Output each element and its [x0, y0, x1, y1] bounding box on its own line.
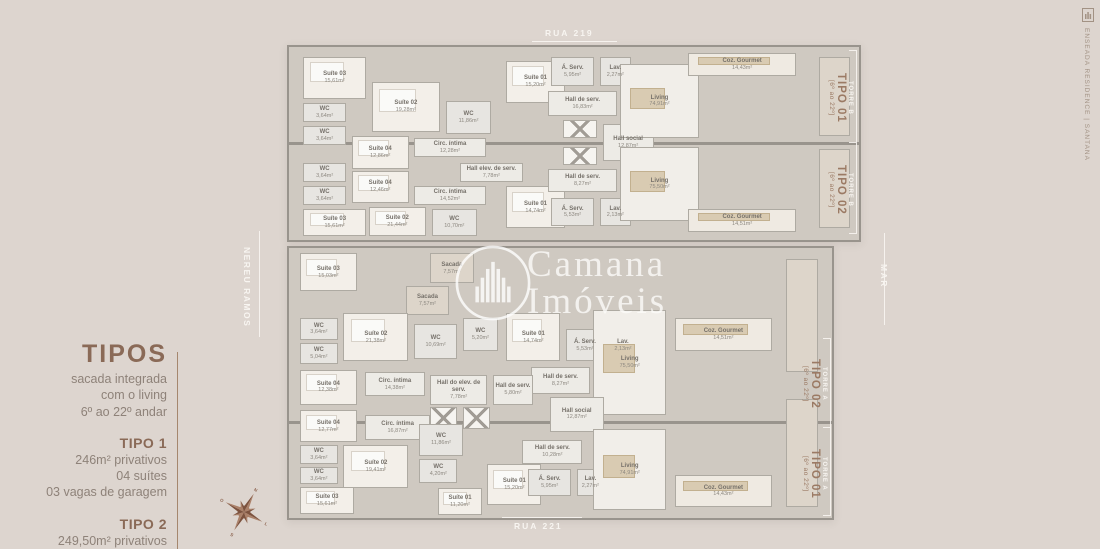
- info-panel-divider: [177, 352, 178, 549]
- room-area: 21,44m²: [387, 222, 407, 228]
- room-circ-intima: Circ. íntima14,52m²: [414, 186, 485, 205]
- room-name: Lav.: [610, 206, 622, 213]
- room-area: 12,46m²: [370, 187, 390, 193]
- room-area: 15,03m²: [318, 273, 338, 279]
- room-name: WC: [431, 335, 441, 342]
- room-sacada: Sacada7,57m²: [406, 286, 449, 316]
- room-area: 4,20m²: [430, 471, 447, 477]
- room-area: 10,69m²: [426, 342, 446, 348]
- room-coz-gourmet: Coz. Gourmet14,51m²: [688, 209, 796, 232]
- room-area: 7,78m²: [450, 394, 467, 400]
- room-area: 11,86m²: [431, 440, 451, 446]
- info-subtitle: sacada integrada com o living 6º ao 22º …: [0, 371, 167, 420]
- tipo-name: TIPO 01: [835, 54, 847, 142]
- floors-range: [6º ao 22º]: [828, 146, 835, 234]
- tower-name: TORRE A: [821, 340, 827, 428]
- room-wc: WC5,04m²: [300, 343, 338, 365]
- corner-brand-label: ENSEADA RESIDENCE | SANTANA: [1083, 28, 1090, 161]
- room-name: Coz. Gourmet: [704, 328, 743, 335]
- room-name: Hall elev. de serv.: [467, 166, 516, 173]
- floors-range: [6º ao 22º]: [828, 54, 835, 142]
- room-area: 2,13m²: [614, 346, 631, 352]
- room-suite-03: Suíte 0315,61m²: [303, 209, 366, 236]
- room-name: WC: [475, 328, 485, 335]
- room-area: 3,64m²: [316, 196, 333, 202]
- room-name: Suíte 02: [394, 100, 417, 107]
- sea-label-mar: MAR: [879, 264, 889, 288]
- room-coz-gourmet: Coz. Gourmet14,51m²: [675, 318, 773, 350]
- room-area: 15,61m²: [325, 78, 345, 84]
- subtitle-line: sacada integrada: [0, 371, 167, 387]
- compass-s: S: [229, 532, 234, 538]
- street-label-nereu-ramos: NEREU RAMOS: [242, 247, 252, 327]
- elevator-core: [563, 147, 597, 164]
- elevator-core: [563, 120, 597, 137]
- room-area: 12,87m²: [567, 414, 587, 420]
- room-suite-02: Suíte 0219,41m²: [343, 445, 408, 488]
- room-area: 14,43m²: [713, 491, 733, 497]
- room-name: WC: [449, 216, 459, 223]
- room-wc: WC3,64m²: [303, 126, 346, 145]
- room-name: Coz. Gourmet: [722, 58, 761, 65]
- room-hall-social: Hall social12,87m²: [550, 397, 604, 432]
- tipo-2-heading: TIPO 2: [0, 516, 167, 532]
- watermark-line-1: Camana: [527, 246, 667, 283]
- room-area: 3,64m²: [316, 113, 333, 119]
- room-area: 12,86m²: [370, 153, 390, 159]
- room-name: Hall de serv.: [496, 383, 531, 390]
- room-name: Suíte 02: [386, 215, 409, 222]
- room-wc: WC3,64m²: [300, 318, 338, 340]
- room-name: Suíte 03: [323, 71, 346, 78]
- room-name: Suíte 03: [316, 494, 339, 501]
- room-name: WC: [320, 129, 330, 136]
- room-name: Coz. Gourmet: [722, 214, 761, 221]
- room-hall-de-serv: Hall de serv.8,27m²: [548, 169, 616, 192]
- room-area: 5,53m²: [564, 212, 581, 218]
- room-wc: WC3,64m²: [303, 103, 346, 122]
- room-suite-03: Suíte 0315,61m²: [303, 57, 366, 99]
- floors-range: [6º ao 22º]: [802, 430, 809, 518]
- room-wc: WC4,20m²: [419, 459, 457, 483]
- room-name: WC: [314, 323, 324, 330]
- room-area: 11,20m²: [450, 502, 470, 508]
- room-name: WC: [314, 469, 324, 476]
- room-name: Suíte 03: [317, 266, 340, 273]
- room-circ-intima: Circ. íntima12,28m²: [414, 138, 485, 157]
- page-title: TIPOS: [0, 342, 167, 367]
- room-name: WC: [320, 106, 330, 113]
- street-line-top: [532, 41, 617, 42]
- room-suite-01: Suíte 0111,20m²: [438, 488, 481, 515]
- room-area: 3,64m²: [310, 476, 327, 482]
- room-area: 14,74m²: [525, 208, 545, 214]
- watermark-line-2: Imóveis: [527, 283, 667, 320]
- subtitle-line: 6º ao 22º andar: [0, 404, 167, 420]
- room-name: Suíte 04: [317, 381, 340, 388]
- room-area: 14,51m²: [713, 335, 733, 341]
- room-area: 21,38m²: [366, 338, 386, 344]
- room-area: 15,20m²: [504, 485, 524, 491]
- room-area: 14,38m²: [385, 385, 405, 391]
- watermark-brand: Camana Imóveis: [527, 246, 667, 320]
- subtitle-line: com o living: [0, 387, 167, 403]
- room-name: Hall do elev. de serv.: [431, 380, 486, 394]
- room-area: 15,20m²: [525, 82, 545, 88]
- room-wc: WC3,64m²: [303, 186, 346, 205]
- room-wc: WC3,64m²: [300, 445, 338, 464]
- room-area: 5,20m²: [472, 335, 489, 341]
- room-suite-04: Suíte 0412,46m²: [352, 171, 409, 204]
- room-circ-intima: Circ. íntima14,38m²: [365, 372, 425, 396]
- room-name: Hall de serv.: [565, 97, 600, 104]
- room-name: Living: [651, 178, 669, 185]
- room-suite-03: Suíte 0315,61m²: [300, 487, 354, 514]
- room-area: 12,77m²: [318, 427, 338, 433]
- room-area: 15,61m²: [317, 501, 337, 507]
- room-living: Living75,50m²: [593, 310, 666, 415]
- torre-b-bracket: [856, 50, 857, 234]
- room-area: 3,64m²: [316, 136, 333, 142]
- room-area: 5,95m²: [564, 72, 581, 78]
- room-name: WC: [464, 111, 474, 118]
- room-name: WC: [314, 347, 324, 354]
- room-area: 2,27m²: [607, 72, 624, 78]
- floors-range: [6º ao 22º]: [802, 340, 809, 428]
- room-area: 12,38m²: [318, 387, 338, 393]
- room-living: Living74,91m²: [593, 429, 666, 510]
- tipo-2-specs: 249,50m² privativos 04 suítes 03 vagas d…: [0, 533, 167, 549]
- room-name: Circ. íntima: [434, 141, 467, 148]
- room-area: 19,28m²: [396, 107, 416, 113]
- room-name: Coz. Gourmet: [704, 485, 743, 492]
- room-name: WC: [320, 166, 330, 173]
- room-name: Living: [651, 95, 669, 102]
- room-a-serv: Á. Serv.5,95m²: [528, 469, 571, 496]
- room-area: 3,64m²: [310, 329, 327, 335]
- room-name: Suíte 04: [317, 420, 340, 427]
- room-hall-de-serv: Hall de serv.10,28m²: [522, 440, 582, 464]
- room-name: Suíte 01: [449, 495, 472, 502]
- room-wc: WC11,86m²: [419, 424, 462, 456]
- compass-l: L: [264, 521, 269, 527]
- room-area: 16,87m²: [388, 428, 408, 434]
- room-wc: WC10,70m²: [432, 209, 478, 236]
- room-area: 7,57m²: [419, 301, 436, 307]
- room-a-serv: Á. Serv.5,53m²: [551, 198, 594, 227]
- room-area: 14,52m²: [440, 196, 460, 202]
- room-suite-03: Suíte 0315,03m²: [300, 253, 357, 291]
- room-hall-de-serv: Hall de serv.8,27m²: [531, 367, 591, 394]
- room-suite-02: Suíte 0221,44m²: [369, 207, 426, 236]
- compass-o: O: [219, 497, 225, 503]
- room-name: Suíte 02: [364, 460, 387, 467]
- tipo-1-heading: TIPO 1: [0, 435, 167, 451]
- room-suite-02: Suíte 0221,38m²: [343, 313, 408, 362]
- room-name: Sacada: [417, 294, 438, 301]
- camana-logo-icon: [449, 239, 537, 327]
- spec-line: 249,50m² privativos: [0, 533, 167, 549]
- room-name: WC: [314, 448, 324, 455]
- compass-rose-icon: N L S O: [214, 482, 274, 542]
- tower-name: TORRE B: [847, 146, 853, 234]
- room-name: Suíte 01: [524, 201, 547, 208]
- floor-plan-poster: Suíte 0315,61m²WC3,64m²WC3,64m²Suíte 021…: [0, 0, 1100, 549]
- room-area: 5,80m²: [504, 390, 521, 396]
- room-wc: WC11,86m²: [446, 101, 492, 134]
- compass-n: N: [253, 487, 258, 493]
- room-area: 3,64m²: [310, 455, 327, 461]
- room-suite-04: Suíte 0412,38m²: [300, 370, 357, 405]
- tipo-name: TIPO 01: [809, 430, 821, 518]
- room-area: 74,91m²: [620, 470, 640, 476]
- room-name: Circ. íntima: [381, 421, 414, 428]
- room-hall-de-serv: Hall de serv.16,83m²: [548, 91, 616, 116]
- elevator-core: [463, 407, 490, 429]
- room-area: 8,27m²: [574, 181, 591, 187]
- room-name: Living: [621, 356, 639, 363]
- room-area: 14,51m²: [732, 221, 752, 227]
- room-name: Á. Serv.: [562, 206, 584, 213]
- room-name: Á. Serv.: [574, 339, 596, 346]
- room-name: Suíte 01: [522, 331, 545, 338]
- room-name: Á. Serv.: [562, 65, 584, 72]
- tower-label-torre-b-tipo-01: TORRE B TIPO 01 [6º ao 22º]: [828, 54, 853, 142]
- room-suite-04: Suíte 0412,86m²: [352, 136, 409, 169]
- room-name: Hall de serv.: [543, 374, 578, 381]
- room-hall-elev-de-serv: Hall elev. de serv.7,78m²: [460, 163, 523, 182]
- tower-label-torre-b-tipo-02: TORRE B TIPO 02 [6º ao 22º]: [828, 146, 853, 234]
- room-suite-04: Suíte 0412,77m²: [300, 410, 357, 442]
- room-name: Circ. íntima: [434, 189, 467, 196]
- room-name: Suíte 01: [503, 478, 526, 485]
- room-name: Hall de serv.: [565, 174, 600, 181]
- tower-label-torre-a-tipo-02: TORRE A TIPO 02 [6º ao 22º]: [802, 340, 827, 428]
- room-area: 11,86m²: [459, 118, 479, 124]
- tipo-name: TIPO 02: [835, 146, 847, 234]
- room-area: 8,27m²: [552, 381, 569, 387]
- room-name: Suíte 04: [369, 180, 392, 187]
- spec-line: 03 vagas de garagem: [0, 484, 167, 500]
- room-coz-gourmet: Coz. Gourmet14,43m²: [688, 53, 796, 76]
- room-area: 75,50m²: [649, 184, 669, 190]
- room-name: Lav.: [617, 339, 629, 346]
- tower-name: TORRE B: [847, 54, 853, 142]
- room-area: 7,78m²: [483, 173, 500, 179]
- info-panel: TIPOS sacada integrada com o living 6º a…: [0, 342, 167, 549]
- room-area: 75,50m²: [620, 363, 640, 369]
- room-name: Hall social: [613, 136, 643, 143]
- room-area: 74,91m²: [649, 101, 669, 107]
- room-suite-02: Suíte 0219,28m²: [372, 82, 440, 132]
- room-name: Suíte 04: [369, 146, 392, 153]
- room-area: 16,83m²: [572, 104, 592, 110]
- street-line-bottom: [502, 517, 582, 518]
- street-label-bottom: RUA 221: [514, 521, 563, 531]
- room-area: 10,70m²: [444, 223, 464, 229]
- torre-a-bracket: [830, 338, 831, 516]
- room-wc: WC10,69m²: [414, 324, 457, 359]
- spec-line: 246m² privativos: [0, 452, 167, 468]
- floor-plan-torre-b: Suíte 0315,61m²WC3,64m²WC3,64m²Suíte 021…: [287, 45, 861, 242]
- room-area: 5,95m²: [541, 483, 558, 489]
- room-wc: WC3,64m²: [303, 163, 346, 182]
- room-wc: WC3,64m²: [300, 467, 338, 485]
- room-area: 2,13m²: [607, 212, 624, 218]
- room-area: 5,53m²: [576, 346, 593, 352]
- room-area: 19,41m²: [366, 467, 386, 473]
- room-coz-gourmet: Coz. Gourmet14,43m²: [675, 475, 773, 507]
- room-name: WC: [436, 433, 446, 440]
- enseada-logo-icon: [1082, 8, 1094, 22]
- room-hall-do-elev-de-serv: Hall do elev. de serv.7,78m²: [430, 375, 487, 405]
- street-label-top: RUA 219: [545, 28, 594, 38]
- spec-line: 04 suítes: [0, 468, 167, 484]
- room-name: Suíte 03: [323, 216, 346, 223]
- room-name: WC: [320, 189, 330, 196]
- room-name: Lav.: [585, 476, 597, 483]
- room-name: Living: [621, 463, 639, 470]
- room-area: 12,87m²: [618, 143, 638, 149]
- room-name: Suíte 02: [364, 331, 387, 338]
- tipo-1-specs: 246m² privativos 04 suítes 03 vagas de g…: [0, 452, 167, 501]
- tower-name: TORRE A: [821, 430, 827, 518]
- room-name: Suíte 01: [524, 75, 547, 82]
- room-a-serv: Á. Serv.5,95m²: [551, 57, 594, 86]
- room-area: 12,28m²: [440, 148, 460, 154]
- room-name: Circ. íntima: [379, 378, 412, 385]
- room-area: 15,61m²: [325, 223, 345, 229]
- room-hall-de-serv: Hall de serv.5,80m²: [493, 375, 534, 405]
- tower-label-torre-a-tipo-01: TORRE A TIPO 01 [6º ao 22º]: [802, 430, 827, 518]
- room-name: Hall social: [562, 408, 592, 415]
- room-name: Á. Serv.: [539, 476, 561, 483]
- room-area: 5,04m²: [310, 354, 327, 360]
- room-name: Hall de serv.: [535, 445, 570, 452]
- room-area: 10,28m²: [542, 452, 562, 458]
- room-area: 3,64m²: [316, 173, 333, 179]
- tipo-name: TIPO 02: [809, 340, 821, 428]
- room-area: 14,74m²: [523, 338, 543, 344]
- nereu-ramos-line: [259, 231, 260, 337]
- room-name: WC: [433, 464, 443, 471]
- room-name: Lav.: [610, 65, 622, 72]
- room-area: 2,27m²: [582, 483, 599, 489]
- room-area: 14,43m²: [732, 65, 752, 71]
